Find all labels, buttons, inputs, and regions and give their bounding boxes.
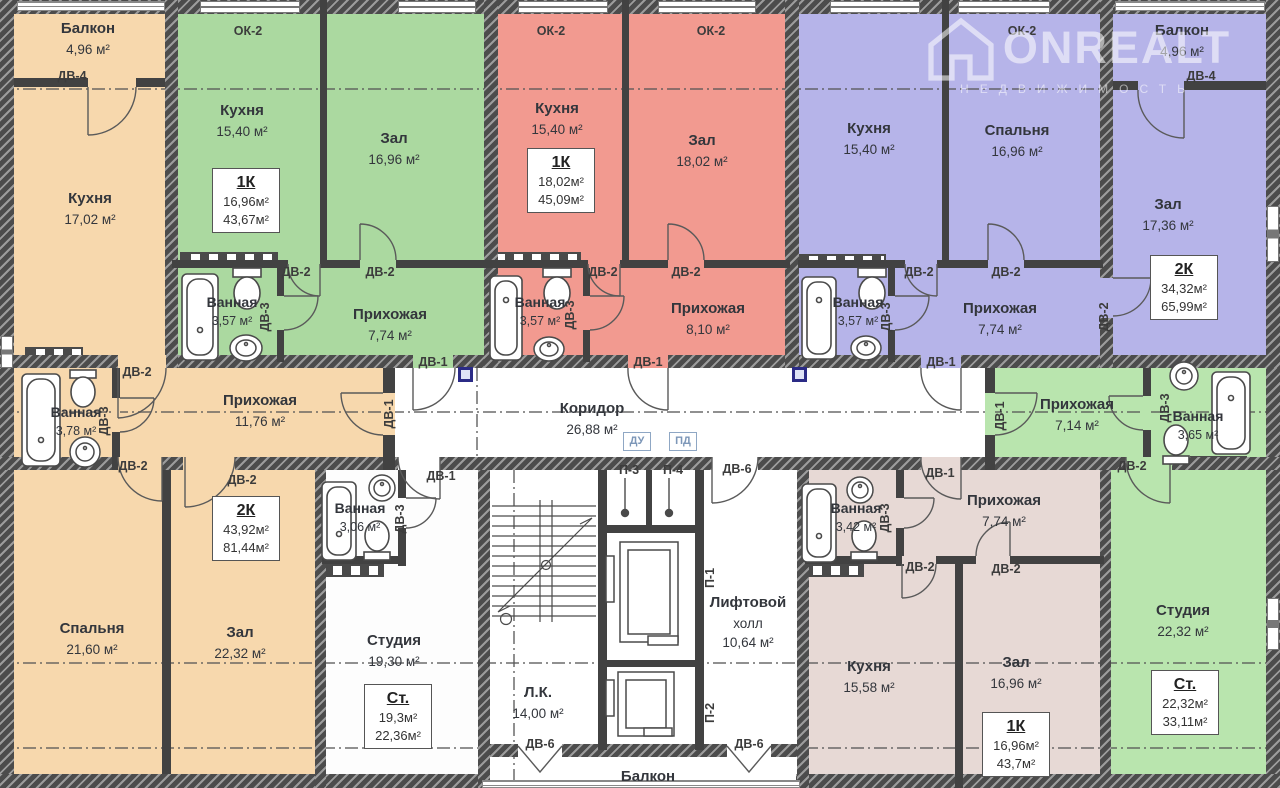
room-area: 22,32 м² [1156, 622, 1210, 642]
door-tag: ДВ-3 [393, 504, 407, 533]
room-name: Зал [368, 128, 419, 150]
room-area: 15,40 м² [216, 122, 267, 142]
room-name: Прихожая [967, 490, 1041, 512]
room-label-studio-mid-bath: Ванная3,06 м² [335, 498, 386, 536]
room-label-studio-mid: Студия19,30 м² [367, 630, 421, 671]
room-label-red-bath: Ванная3,57 м² [515, 292, 566, 330]
wall [1100, 470, 1111, 788]
window [658, 1, 756, 13]
wall [315, 470, 326, 788]
door-tag: ДВ-2 [118, 459, 147, 473]
room-label-brown-bath: Ванная3,42 м² [831, 498, 882, 536]
door-tag: ДВ-4 [57, 69, 86, 83]
wall [320, 0, 327, 268]
door-opening [183, 457, 235, 470]
room-name: Студия [1156, 600, 1210, 622]
room-label-bottom-balcony: Балкон [621, 766, 675, 788]
room-label-green-bath: Ванная3,57 м² [207, 292, 258, 330]
room-area: 7,14 м² [1040, 416, 1114, 436]
wall [1266, 0, 1280, 788]
room-name: Коридор [560, 398, 625, 420]
door-tag: ДВ-2 [991, 562, 1020, 576]
room-name: Прихожая [353, 304, 427, 326]
room-area: 18,02 м² [676, 152, 727, 172]
room-label-purple-bedroom: Спальня16,96 м² [985, 120, 1050, 161]
room-label-green-hall: Прихожая7,74 м² [353, 304, 427, 345]
badge-area-living: 43,92м² [220, 521, 272, 539]
room-label-stairs: Л.К.14,00 м² [512, 682, 563, 723]
apartment-badge-studio-mid: Ст.19,3м²22,36м² [364, 684, 432, 749]
tile-screen [802, 564, 864, 577]
door-opening [896, 498, 904, 528]
room-area: 15,40 м² [843, 140, 894, 160]
room-area: 3,06 м² [335, 518, 386, 536]
door-tag: ДВ-2 [588, 265, 617, 279]
room-area: 17,36 м² [1142, 216, 1193, 236]
wall [322, 260, 488, 268]
door-tag: ДВ-2 [122, 365, 151, 379]
room-label-strip-hall: Прихожая7,14 м² [1040, 394, 1114, 435]
wall [0, 0, 14, 788]
shaft-tag: П-2 [703, 703, 717, 723]
room-area: 16,96 м² [990, 674, 1041, 694]
room-name: Ванная [515, 292, 566, 312]
electrical-box-icon [458, 367, 473, 382]
badge-area-living: 19,3м² [372, 709, 424, 727]
wall [955, 563, 963, 788]
door-tag: ДВ-1 [382, 399, 396, 428]
room-label-left-balcony: Балкон4,96 м² [61, 18, 115, 59]
door-tag: ДВ-3 [258, 302, 272, 331]
door-tag: ДВ-3 [879, 302, 893, 331]
badge-type: Ст. [1159, 675, 1211, 695]
door-tag: ДВ-3 [878, 503, 892, 532]
room-label-red-living: Зал18,02 м² [676, 130, 727, 171]
room-fill-green-strip [985, 368, 1280, 470]
room-name: Спальня [60, 618, 125, 640]
room-area: 17,02 м² [64, 210, 115, 230]
wall [945, 260, 1103, 268]
window-tag: ОК-2 [697, 24, 725, 38]
wall [162, 470, 171, 774]
pd-box: ПД [669, 432, 697, 451]
door-tag: ДВ-6 [734, 737, 763, 751]
apartment-badge-green1k: 1К16,96м²43,67м² [212, 168, 280, 233]
room-area: 16,96 м² [368, 150, 419, 170]
room-name: Зал [1142, 194, 1193, 216]
door-tag: ДВ-3 [97, 406, 111, 435]
door-opening [88, 78, 136, 87]
apartment-badge-red1k: 1К18,02м²45,09м² [527, 148, 595, 213]
badge-area-total: 43,7м² [990, 755, 1042, 773]
wall [797, 470, 809, 788]
door-tag: ДВ-2 [365, 265, 394, 279]
wall [629, 260, 790, 268]
wall [598, 470, 607, 750]
room-area: 15,40 м² [531, 120, 582, 140]
wall [805, 556, 1104, 564]
room-area: 26,88 м² [560, 420, 625, 440]
wall [785, 0, 799, 368]
room-fill-corridor [383, 368, 995, 470]
badge-area-total: 33,11м² [1159, 713, 1211, 731]
door-tag: ДВ-2 [1097, 302, 1111, 331]
room-name: Ванная [831, 498, 882, 518]
wall [484, 0, 498, 368]
room-name: Кухня [216, 100, 267, 122]
door-tag: ДВ-1 [926, 355, 955, 369]
room-area: 8,10 м² [671, 320, 745, 340]
badge-area-total: 45,09м² [535, 191, 587, 209]
floor-plan: ДУ ПД [0, 0, 1280, 788]
room-name: Кухня [843, 118, 894, 140]
wall [0, 774, 484, 788]
badge-area-living: 34,32м² [1158, 280, 1210, 298]
room-name: Ванная [51, 402, 102, 422]
room-label-brown-kitchen: Кухня15,58 м² [843, 656, 894, 697]
badge-area-total: 43,67м² [220, 211, 272, 229]
door-tag: ДВ-2 [991, 265, 1020, 279]
room-area: 4,96 м² [61, 40, 115, 60]
room-name: Зал [214, 622, 265, 644]
room-label-lift-hall: Лифтовойхолл10,64 м² [710, 592, 786, 653]
badge-type: 1К [990, 717, 1042, 737]
room-label-purple-kitchen: Кухня15,40 м² [843, 118, 894, 159]
room-name: Лифтовой [710, 592, 786, 614]
room-label-green-living: Зал16,96 м² [368, 128, 419, 169]
room-label-studio-right: Студия22,32 м² [1156, 600, 1210, 641]
door-tag: ДВ-6 [722, 462, 751, 476]
badge-type: Ст. [372, 689, 424, 709]
door-tag: ДВ-2 [1117, 459, 1146, 473]
room-label-left-living: Зал22,32 м² [214, 622, 265, 663]
apartment-badge-left2k: 2К43,92м²81,44м² [212, 496, 280, 561]
badge-area-living: 16,96м² [220, 193, 272, 211]
door-tag: ДВ-2 [904, 265, 933, 279]
room-name: Прихожая [671, 298, 745, 320]
room-label-left-kitchen: Кухня17,02 м² [64, 188, 115, 229]
pd-label: ПД [675, 435, 691, 447]
room-name: Л.К. [512, 682, 563, 704]
room-label-brown-hall: Прихожая7,74 м² [967, 490, 1041, 531]
door-tag: ДВ-2 [905, 560, 934, 574]
room-label-purple-living: Зал17,36 м² [1142, 194, 1193, 235]
room-area: 3,57 м² [515, 312, 566, 330]
balcony-rail [17, 1, 165, 11]
room-name: Балкон [61, 18, 115, 40]
badge-type: 2К [220, 501, 272, 521]
room-area: 3,57 м² [207, 312, 258, 330]
door-tag: ДВ-6 [525, 737, 554, 751]
wall [622, 0, 629, 268]
room-area: 11,76 м² [223, 412, 297, 432]
room-area: 3,57 м² [833, 312, 884, 330]
door-opening [112, 398, 120, 432]
door-opening [277, 296, 284, 330]
room-area: 7,74 м² [967, 512, 1041, 532]
room-name: Кухня [531, 98, 582, 120]
onrealt-house-icon [925, 12, 997, 84]
room-name: Ванная [833, 292, 884, 312]
door-tag: ДВ-1 [993, 401, 1007, 430]
apartment-badge-studio-right: Ст.22,32м²33,11м² [1151, 670, 1219, 735]
window [1267, 598, 1279, 650]
door-tag: П-4 [663, 463, 683, 477]
wall [598, 660, 704, 667]
window [1267, 206, 1279, 262]
wall [165, 0, 178, 368]
room-area: 10,64 м² [710, 633, 786, 653]
room-label-corridor: Коридор26,88 м² [560, 398, 625, 439]
du-label: ДУ [630, 435, 645, 447]
shaft-tag: П-1 [703, 568, 717, 588]
watermark-brand: ONREALT [1003, 22, 1231, 74]
room-area: 19,30 м² [367, 652, 421, 672]
badge-area-total: 65,99м² [1158, 298, 1210, 316]
room-area: 7,74 м² [963, 320, 1037, 340]
axis-line [476, 368, 478, 470]
room-label-red-kitchen: Кухня15,40 м² [531, 98, 582, 139]
door-tag: ДВ-1 [633, 355, 662, 369]
door-tag: ДВ-1 [418, 355, 447, 369]
room-name: Ванная [1173, 406, 1224, 426]
watermark: ONREALT НЕДВИЖИМОСТЬ [878, 12, 1278, 96]
window-tag: ОК-2 [234, 24, 262, 38]
room-name: Зал [676, 130, 727, 152]
apartment-badge-brown1k: 1К16,96м²43,7м² [982, 712, 1050, 777]
badge-type: 2К [1158, 260, 1210, 280]
window [398, 1, 476, 13]
axis-line [513, 470, 515, 788]
window [200, 1, 300, 13]
badge-area-living: 16,96м² [990, 737, 1042, 755]
badge-area-total: 81,44м² [220, 539, 272, 557]
room-name-2: холл [710, 614, 786, 634]
room-label-green-kitchen: Кухня15,40 м² [216, 100, 267, 141]
electrical-box-icon [792, 367, 807, 382]
room-label-left-bath: Ванная3,78 м² [51, 402, 102, 440]
badge-area-living: 18,02м² [535, 173, 587, 191]
balcony-rail [1115, 1, 1265, 11]
door-tag: ДВ-2 [281, 265, 310, 279]
badge-type: 1К [535, 153, 587, 173]
window-tag: ОК-2 [537, 24, 565, 38]
room-label-brown-living: Зал16,96 м² [990, 652, 1041, 693]
room-name: Кухня [64, 188, 115, 210]
door-tag: ДВ-1 [925, 466, 954, 480]
room-area: 7,74 м² [353, 326, 427, 346]
apartment-badge-purple2k: 2К34,32м²65,99м² [1150, 255, 1218, 320]
door-tag: ДВ-2 [671, 265, 700, 279]
room-area: 15,58 м² [843, 678, 894, 698]
room-name: Спальня [985, 120, 1050, 142]
room-name: Ванная [207, 292, 258, 312]
room-name: Студия [367, 630, 421, 652]
door-tag: ДВ-3 [1158, 393, 1172, 422]
room-label-strip-bath: Ванная3,65 м² [1173, 406, 1224, 444]
room-name: Прихожая [963, 298, 1037, 320]
room-label-left-hall: Прихожая11,76 м² [223, 390, 297, 431]
watermark-subtitle: НЕДВИЖИМОСТЬ [878, 82, 1278, 96]
window [1, 336, 13, 368]
door-tag: П-3 [619, 463, 639, 477]
badge-area-total: 22,36м² [372, 727, 424, 745]
wall [322, 556, 402, 564]
room-name: Балкон [621, 766, 675, 788]
room-area: 3,42 м² [831, 518, 882, 536]
door-tag: ДВ-1 [426, 469, 455, 483]
room-name: Прихожая [1040, 394, 1114, 416]
room-label-red-hall: Прихожая8,10 м² [671, 298, 745, 339]
door-tag: ДВ-3 [563, 300, 577, 329]
room-name: Зал [990, 652, 1041, 674]
room-label-purple-hall: Прихожая7,74 м² [963, 298, 1037, 339]
badge-type: 1К [220, 173, 272, 193]
room-label-left-bedroom: Спальня21,60 м² [60, 618, 125, 659]
door-opening [583, 296, 590, 330]
room-area: 22,32 м² [214, 644, 265, 664]
room-area: 3,65 м² [1173, 426, 1224, 444]
wall [478, 470, 490, 788]
wall [646, 470, 652, 528]
room-name: Ванная [335, 498, 386, 518]
door-opening [1143, 396, 1151, 430]
room-area: 3,78 м² [51, 422, 102, 440]
room-name: Кухня [843, 656, 894, 678]
tile-screen [322, 564, 384, 577]
room-area: 21,60 м² [60, 640, 125, 660]
room-name: Прихожая [223, 390, 297, 412]
door-tag: ДВ-2 [227, 473, 256, 487]
room-label-purple-bath: Ванная3,57 м² [833, 292, 884, 330]
badge-area-living: 22,32м² [1159, 695, 1211, 713]
room-area: 14,00 м² [512, 704, 563, 724]
room-area: 16,96 м² [985, 142, 1050, 162]
du-box: ДУ [623, 432, 651, 451]
window [518, 1, 608, 13]
